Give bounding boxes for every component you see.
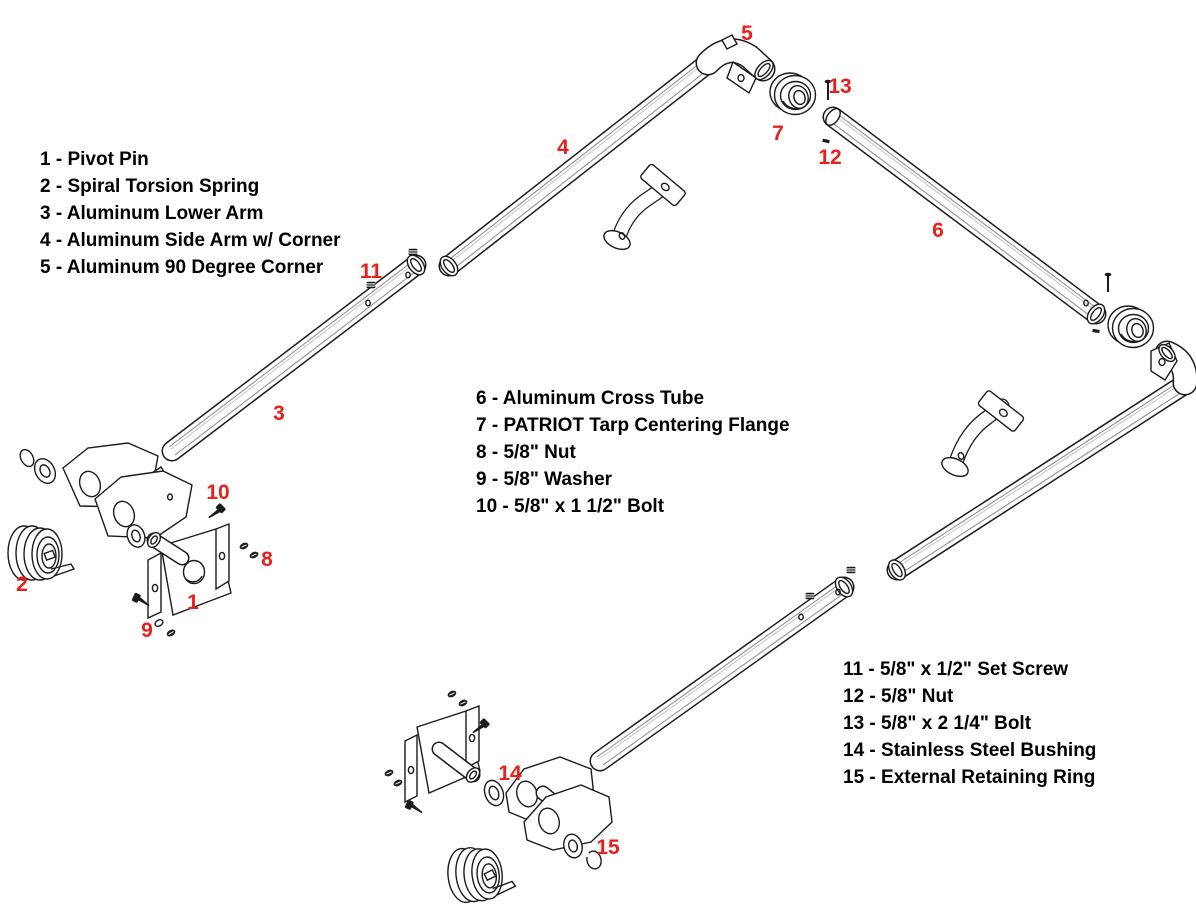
part-callout-1: 1 xyxy=(187,591,199,615)
part-callout-10: 10 xyxy=(206,481,229,505)
washers-top-left-drawing xyxy=(17,447,59,487)
legend-item: 9 - 5/8" Washer xyxy=(476,466,790,493)
legend-item: 12 - 5/8" Nut xyxy=(843,683,1096,710)
legend-item: 11 - 5/8" x 1/2" Set Screw xyxy=(843,656,1096,683)
bolt-13-right-mark-drawing xyxy=(1105,273,1112,292)
side-arm-top-drawing xyxy=(437,56,715,279)
legend-item: 14 - Stainless Steel Bushing xyxy=(843,737,1096,764)
part-callout-11: 11 xyxy=(360,260,382,284)
part-callout-6: 6 xyxy=(932,219,944,243)
legend-item: 15 - External Retaining Ring xyxy=(843,764,1096,791)
legend-item: 13 - 5/8" x 2 1/4" Bolt xyxy=(843,710,1096,737)
legend-item: 3 - Aluminum Lower Arm xyxy=(40,200,341,227)
corner-90-right-drawing xyxy=(1151,342,1185,383)
part-callout-9: 9 xyxy=(141,619,153,643)
legend-item: 6 - Aluminum Cross Tube xyxy=(476,385,790,412)
part-callout-7: 7 xyxy=(772,122,784,146)
legend-item: 4 - Aluminum Side Arm w/ Corner xyxy=(40,227,341,254)
legend-block-parts-6-10: 6 - Aluminum Cross Tube7 - PATRIOT Tarp … xyxy=(476,385,790,520)
part-callout-8: 8 xyxy=(261,548,273,572)
nut-12-right-mark-drawing xyxy=(1092,329,1099,333)
legend-item: 5 - Aluminum 90 Degree Corner xyxy=(40,254,341,281)
part-callout-5: 5 xyxy=(741,22,753,46)
legend-block-parts-1-5: 1 - Pivot Pin2 - Spiral Torsion Spring3 … xyxy=(40,146,341,281)
centering-flange-right-drawing xyxy=(1108,306,1154,348)
lower-arm-bottom-drawing xyxy=(597,567,856,765)
side-arm-bottom-drawing xyxy=(885,382,1185,583)
corner-strap-bottom-drawing xyxy=(939,390,1025,480)
legend-block-parts-11-15: 11 - 5/8" x 1/2" Set Screw12 - 5/8" Nut1… xyxy=(843,656,1096,791)
parts-diagram-page: 1 - Pivot Pin2 - Spiral Torsion Spring3 … xyxy=(0,0,1196,912)
part-callout-4: 4 xyxy=(557,136,569,160)
corner-strap-top-drawing xyxy=(601,163,686,253)
cross-tube-drawing xyxy=(823,106,1108,327)
part-callout-13: 13 xyxy=(828,75,851,99)
legend-item: 10 - 5/8" x 1 1/2" Bolt xyxy=(476,493,790,520)
part-callout-2: 2 xyxy=(16,573,28,597)
legend-item: 2 - Spiral Torsion Spring xyxy=(40,173,341,200)
spring-bottom-drawing xyxy=(445,843,516,904)
bracket-pivot-bottom-drawing xyxy=(405,706,482,802)
nut-12-mark-drawing xyxy=(822,139,830,144)
legend-item: 1 - Pivot Pin xyxy=(40,146,341,173)
part-callout-12: 12 xyxy=(818,146,841,170)
part-callout-15: 15 xyxy=(596,836,619,860)
spring-2-drawing xyxy=(8,526,74,580)
centering-flange-top-drawing xyxy=(770,73,816,115)
part-callout-3: 3 xyxy=(273,402,285,426)
legend-item: 7 - PATRIOT Tarp Centering Flange xyxy=(476,412,790,439)
legend-item: 8 - 5/8" Nut xyxy=(476,439,790,466)
part-callout-14: 14 xyxy=(498,762,521,786)
